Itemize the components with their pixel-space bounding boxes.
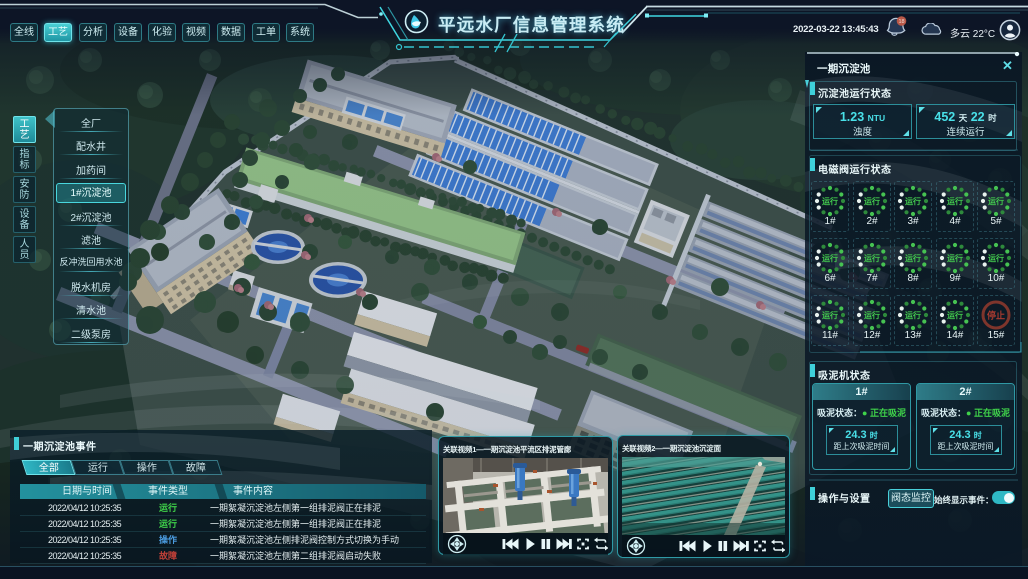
svg-text:运行: 运行 — [988, 253, 1004, 263]
svg-text:运行: 运行 — [822, 196, 838, 206]
svg-text:运行: 运行 — [905, 253, 921, 263]
svg-text:运行: 运行 — [988, 196, 1004, 206]
svg-text:运行: 运行 — [947, 196, 963, 206]
svg-text:运行: 运行 — [822, 253, 838, 263]
svg-text:运行: 运行 — [905, 196, 921, 206]
svg-text:运行: 运行 — [947, 310, 963, 320]
svg-text:运行: 运行 — [864, 253, 880, 263]
svg-text:运行: 运行 — [822, 310, 838, 320]
svg-text:运行: 运行 — [864, 310, 880, 320]
svg-text:运行: 运行 — [947, 253, 963, 263]
svg-text:运行: 运行 — [905, 310, 921, 320]
svg-text:停止: 停止 — [987, 310, 1005, 321]
svg-text:运行: 运行 — [864, 196, 880, 206]
svg-text:18: 18 — [898, 19, 904, 25]
